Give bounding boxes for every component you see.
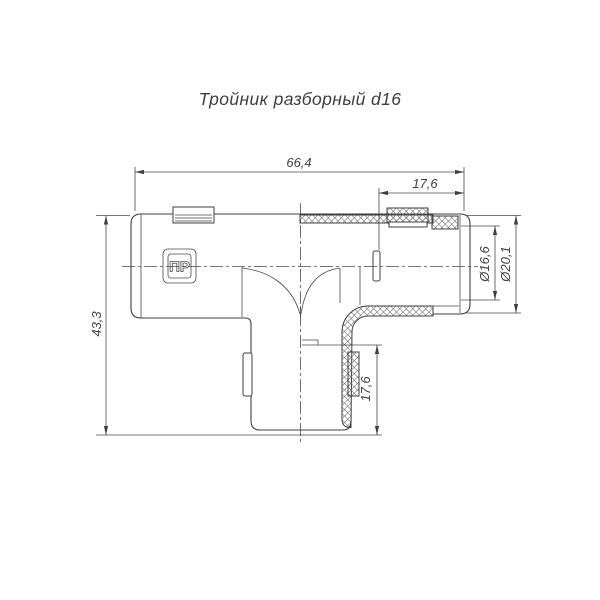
dim-label-bottom-socket-depth: 17,6 [358, 376, 373, 402]
top-grip-block [387, 208, 428, 222]
dim-label-outer-diameter: Ø20,1 [498, 246, 513, 282]
logo-text: ПР [169, 259, 190, 276]
right-grip-block [432, 216, 458, 229]
technical-drawing: Тройник разборный d16 [0, 0, 600, 600]
dim-label-inner-diameter: Ø16,6 [477, 246, 492, 283]
branch-left-latch [243, 353, 252, 396]
top-grip-lip [389, 222, 427, 227]
dim-label-top-socket-depth: 17,6 [412, 176, 438, 191]
dim-label-total-height: 43,3 [89, 311, 104, 337]
drawing-title: Тройник разборный d16 [199, 89, 402, 109]
dim-label-total-length: 66,4 [286, 155, 311, 170]
oring-slot [373, 251, 380, 281]
